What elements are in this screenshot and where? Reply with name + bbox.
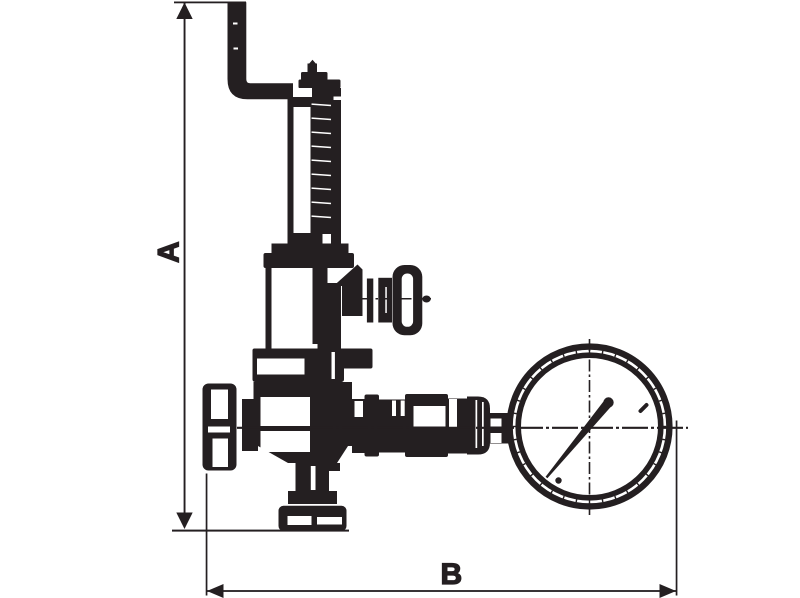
svg-text:A: A	[153, 241, 186, 263]
svg-text:B: B	[441, 558, 463, 591]
